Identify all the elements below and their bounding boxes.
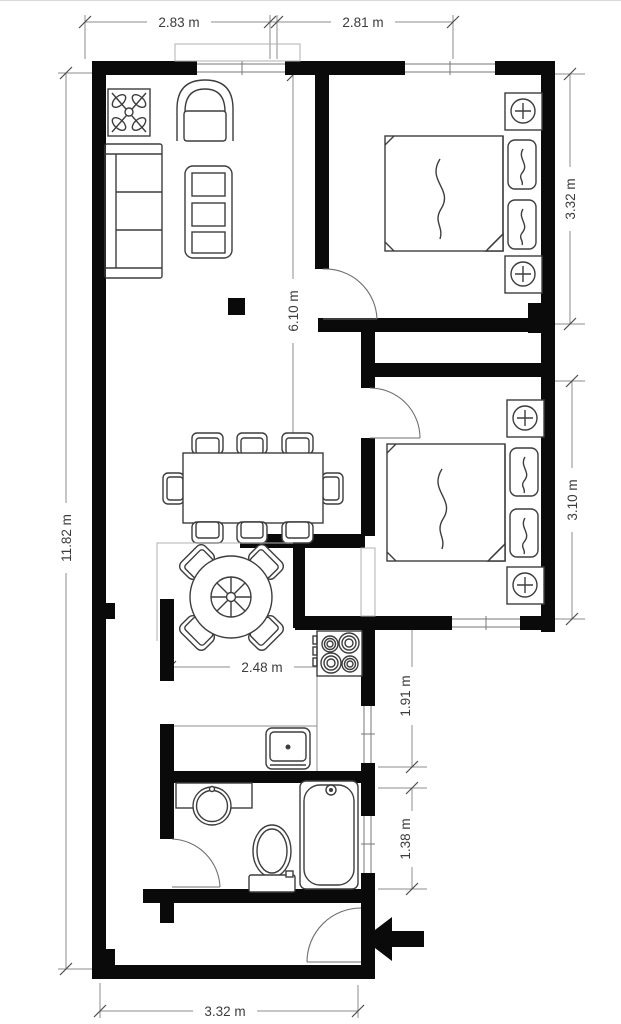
bedroom2-door [370, 388, 420, 438]
kitchen-east-wall-a [361, 630, 375, 706]
bedroom-1 [385, 93, 542, 293]
kitchen-west-wall-a [160, 599, 174, 681]
breakfast-nook [157, 542, 293, 653]
top-wall-b [285, 61, 405, 75]
bathroom [176, 781, 358, 892]
dim-kitchen-width: 2.48 m [241, 660, 282, 675]
bedroom2-window [452, 616, 520, 630]
pantry-partition [361, 548, 375, 616]
dim-bedroom2: 3.10 m [565, 479, 580, 520]
toilet-icon [249, 825, 295, 892]
dim-interior: 6.10 m [286, 290, 301, 331]
pillow-icon [508, 140, 536, 249]
living-room-window [197, 61, 285, 75]
floor-plan: 2.83 m 2.81 m 11.82 m 6.10 m 3.32 m 3.10… [0, 0, 621, 1024]
column-icon [228, 298, 245, 315]
sofa-icon [105, 144, 162, 278]
nightstand-lamp-icon [505, 93, 542, 293]
entry-door [307, 908, 361, 962]
bedroom1-window [405, 61, 495, 75]
potted-plant-icon [108, 89, 150, 136]
bedroom1-door [323, 269, 377, 319]
living-room [105, 80, 245, 315]
wash-basin-icon [193, 787, 231, 826]
bedroom1-south-wall [318, 318, 555, 332]
bedroom1-west-wall [315, 75, 329, 269]
left-wall-pier-bottom [106, 949, 115, 965]
left-wall [92, 61, 106, 979]
nightstand-lamp-icon [507, 400, 544, 604]
dining-area [163, 433, 343, 543]
dim-bedroom1: 3.32 m [563, 178, 578, 219]
stove-icon [313, 631, 362, 676]
dim-kitchen-right: 1.91 m [398, 675, 413, 716]
hall-connector-wall [361, 318, 375, 388]
double-bed-icon [387, 444, 505, 561]
double-bed-icon [385, 136, 503, 251]
floor-plan-svg: 2.83 m 2.81 m 11.82 m 6.10 m 3.32 m 3.10… [0, 1, 621, 1024]
left-wall-pier [106, 603, 115, 619]
dining-chairs-top [192, 433, 313, 454]
bedroom2-west-wall [361, 438, 375, 536]
dining-chairs-bottom [192, 522, 313, 543]
bathroom-east-window [361, 816, 375, 873]
dim-bathroom: 1.38 m [398, 818, 413, 859]
armchair-icon [177, 80, 233, 141]
dim-top-right: 2.81 m [342, 15, 383, 30]
kitchen-east-window [361, 706, 375, 763]
kitchen [174, 631, 362, 771]
dining-table-icon [183, 453, 323, 523]
dim-left: 11.82 m [59, 514, 74, 562]
pillow-icon [510, 448, 538, 557]
top-closet-outline [175, 44, 300, 61]
table-wheel-icon [211, 577, 251, 617]
bottom-wall [92, 965, 375, 979]
dim-bottom: 3.32 m [204, 1004, 245, 1019]
dim-top-left: 2.83 m [158, 15, 199, 30]
kitchen-east-wall-b [361, 763, 375, 816]
bedroom-2 [387, 400, 544, 604]
kitchen-south-wall-a [295, 616, 452, 630]
bathtub-icon [300, 781, 358, 889]
kitchen-sink-icon [266, 728, 310, 769]
bedroom2-south-wall-b [520, 616, 555, 630]
right-wall [541, 61, 555, 632]
bedroom2-north-wall [361, 363, 555, 377]
entry-east-wall [361, 873, 375, 979]
top-wall-a [92, 61, 197, 75]
coffee-table-icon [185, 166, 232, 258]
bathroom-door [172, 839, 220, 887]
